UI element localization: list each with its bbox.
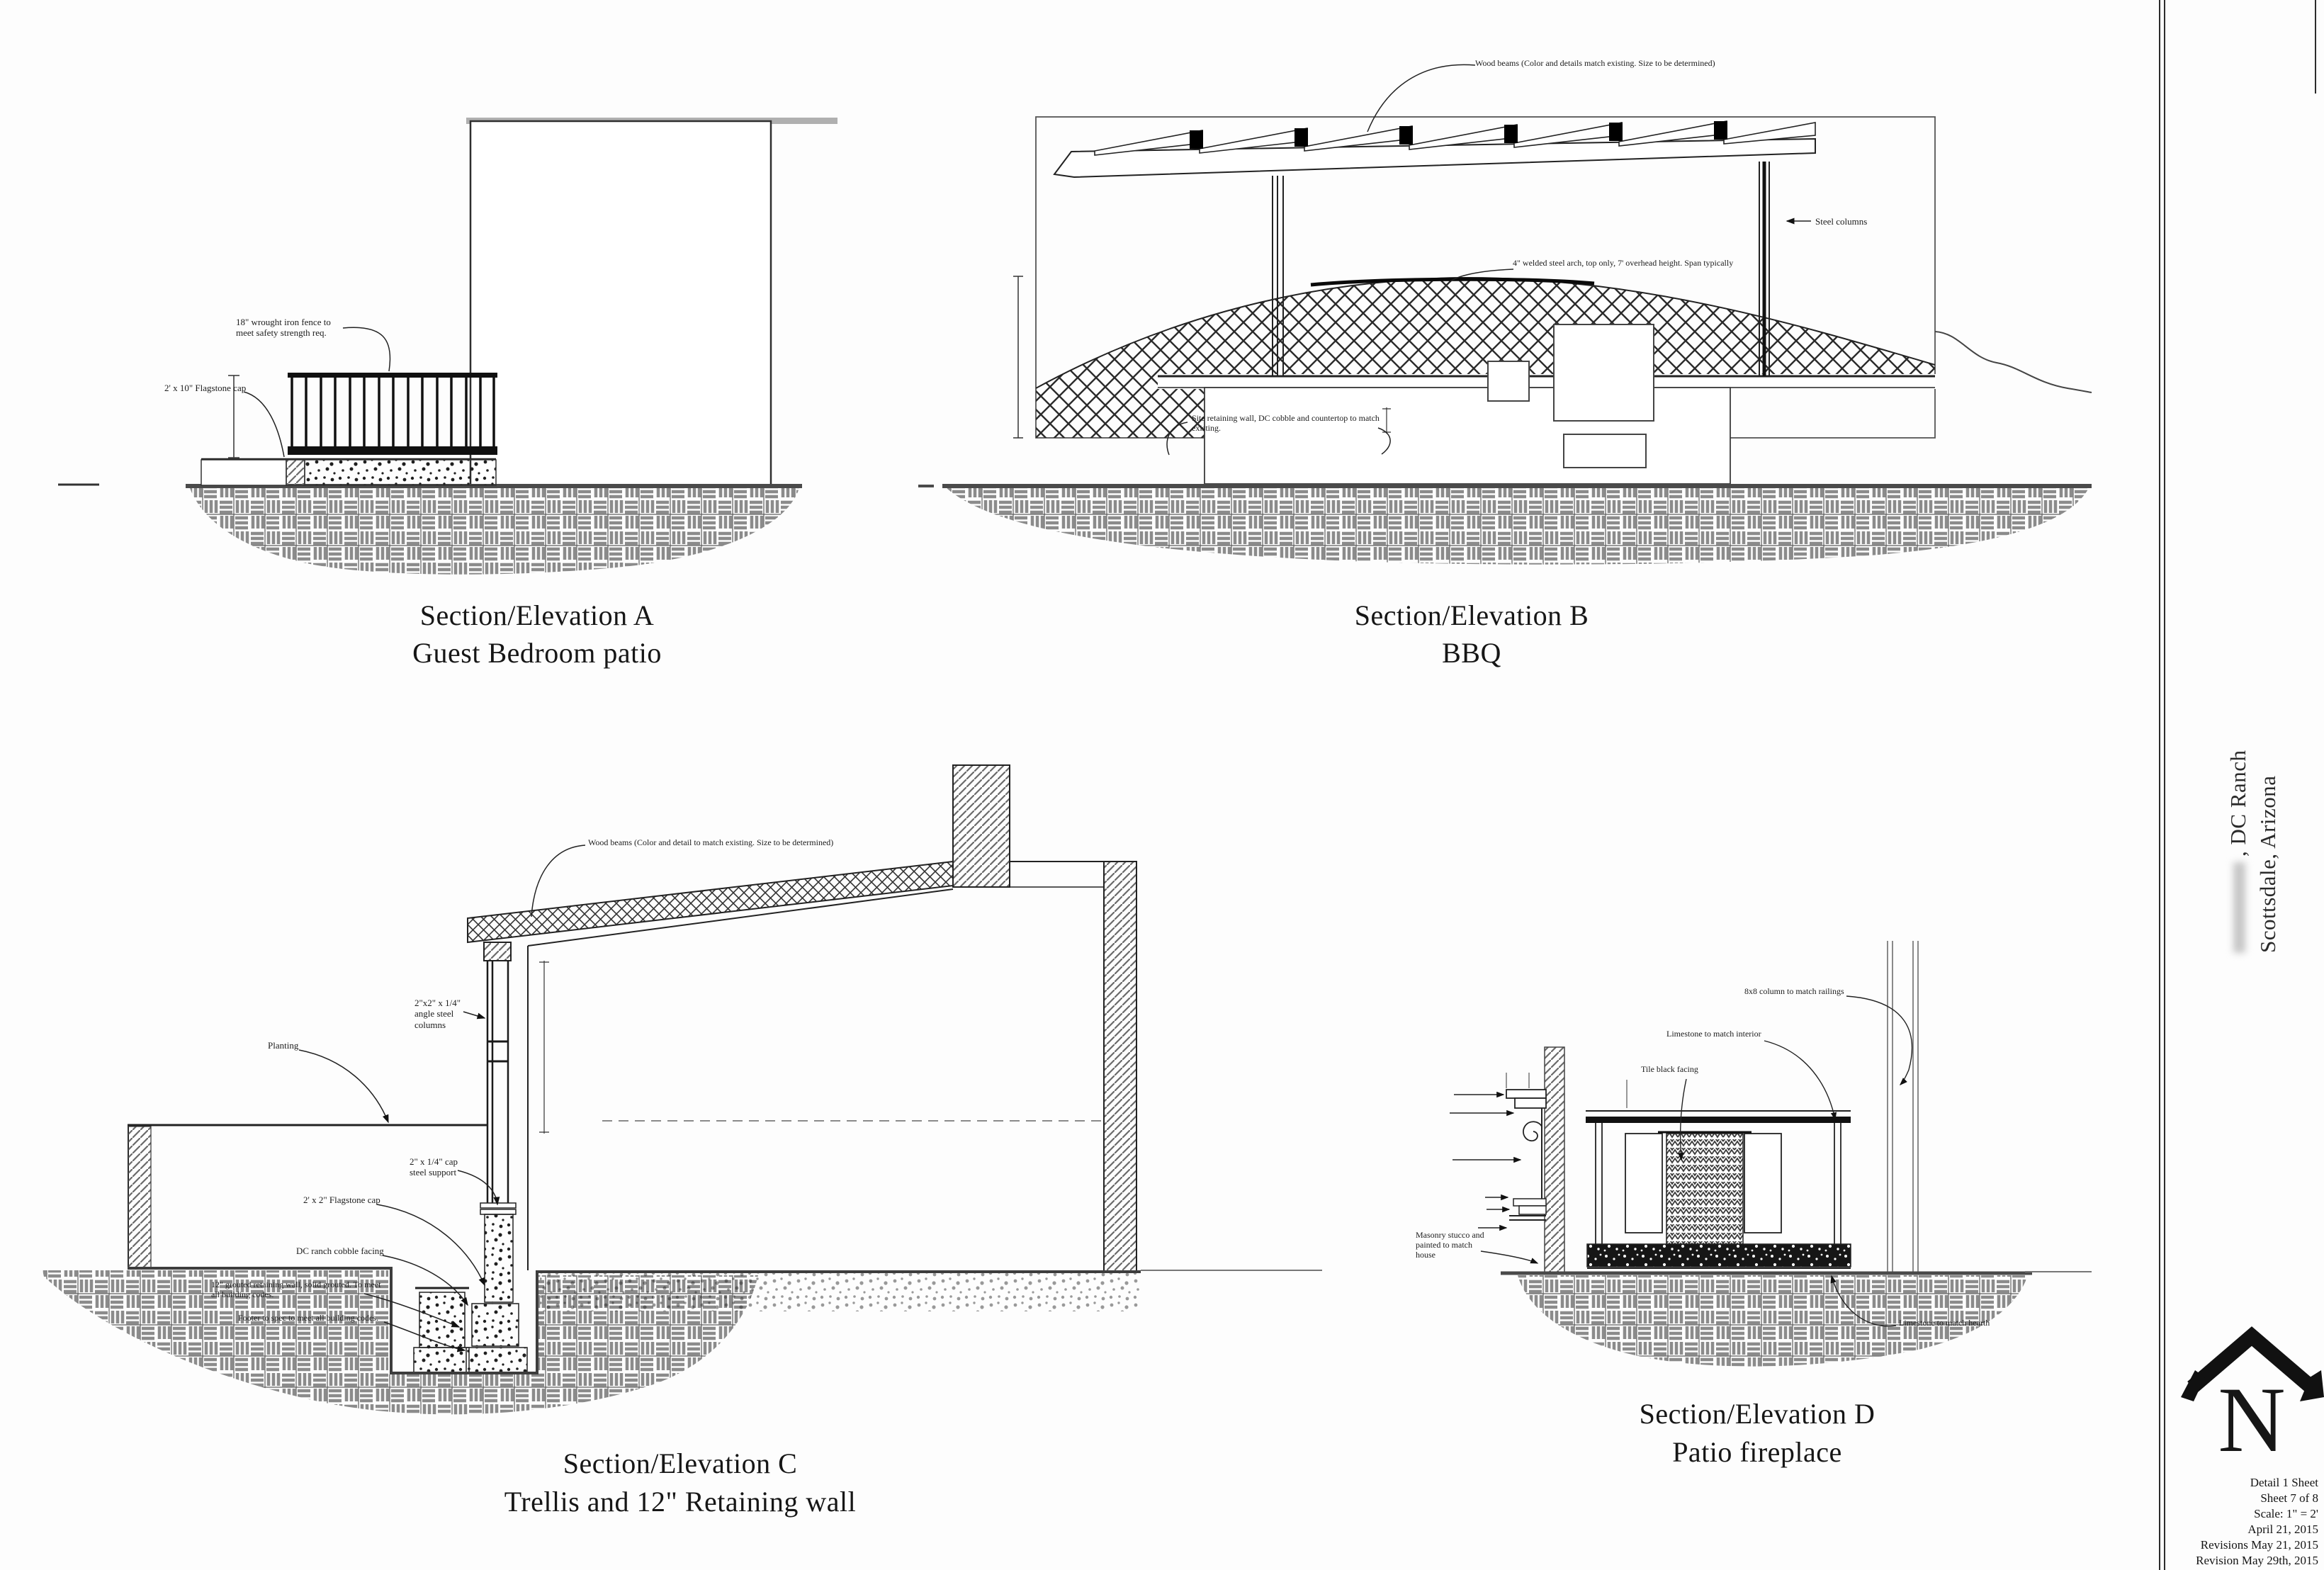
caption-b-line1: Section/Elevation B: [1273, 599, 1670, 632]
note-c-planting: Planting: [268, 1040, 298, 1051]
drawing-sheet: N 18" wrought iron fence to meet safety …: [0, 0, 2324, 1570]
note-d-tile: Tile black facing: [1641, 1064, 1698, 1074]
note-c-cobble: DC ranch cobble facing: [296, 1246, 384, 1256]
project-line1: , DC Ranch: [2223, 641, 2253, 953]
note-c-angle-columns: 2"x2" x 1/4" angle steel columns: [414, 998, 485, 1030]
note-a-flagstone: 2' x 10" Flagstone cap: [164, 383, 246, 393]
caption-b-line2: BBQ: [1273, 636, 1670, 670]
note-d-limestone-hearth: Limestone to match hearth: [1899, 1318, 1990, 1328]
caption-d-line2: Patio fireplace: [1559, 1435, 1956, 1469]
info-line: Revision May 29th, 2015: [2097, 1553, 2318, 1569]
info-line: Sheet 7 of 8: [2097, 1491, 2318, 1506]
caption-a-line2: Guest Bedroom patio: [339, 636, 735, 670]
note-b-steel-arch: 4" welded steel arch, top only, 7' overh…: [1513, 258, 1733, 268]
sheet-info-block: Detail 1 Sheet Sheet 7 of 8 Scale: 1" = …: [2097, 1475, 2318, 1569]
info-line: Detail 1 Sheet: [2097, 1475, 2318, 1491]
note-c-wall: 12" grouted retaining wall, solid groute…: [211, 1280, 380, 1299]
info-line: Revisions May 21, 2015: [2097, 1537, 2318, 1553]
section-c-drawing: [43, 765, 1322, 1414]
note-d-stucco: Masonry stucco and painted to match hous…: [1416, 1230, 1501, 1260]
caption-a-line1: Section/Elevation A: [339, 599, 735, 632]
info-line: Scale: 1" = 2': [2097, 1506, 2318, 1522]
section-b-drawing: [918, 64, 2092, 564]
note-c-footer: Footer to spec to meet all building code…: [238, 1313, 378, 1323]
caption-d-line1: Section/Elevation D: [1559, 1397, 1956, 1430]
note-a-fence: 18" wrought iron fence to meet safety st…: [236, 317, 363, 339]
info-line: April 21, 2015: [2097, 1522, 2318, 1537]
note-c-cap-support: 2" x 1/4" cap steel support: [410, 1156, 487, 1178]
logo-letter: N: [2218, 1367, 2285, 1472]
project-line2: Scottsdale, Arizona: [2253, 641, 2283, 953]
redacted-lot-text: [2233, 862, 2245, 953]
section-d-drawing: [1450, 941, 2092, 1367]
note-b-steel-columns: Steel columns: [1815, 216, 1867, 227]
note-d-column: 8x8 column to match railings: [1744, 986, 1844, 996]
caption-c-line1: Section/Elevation C: [482, 1447, 879, 1480]
note-d-limestone-top: Limestone to match interior: [1666, 1029, 1761, 1039]
note-b-wood-beams: Wood beams (Color and details match exis…: [1475, 58, 1715, 68]
caption-c-line2: Trellis and 12" Retaining wall: [482, 1485, 879, 1518]
section-a-drawing: [58, 118, 837, 575]
project-title: , DC Ranch Scottsdale, Arizona: [2223, 641, 2283, 953]
note-b-retaining: Site retaining wall, DC cobble and count…: [1192, 413, 1380, 433]
drawing-linework: N: [0, 0, 2324, 1570]
north-logo: N: [2181, 1336, 2324, 1472]
note-c-flagstone: 2' x 2" Flagstone cap: [303, 1195, 380, 1205]
note-c-wood-beams: Wood beams (Color and detail to match ex…: [588, 837, 833, 847]
